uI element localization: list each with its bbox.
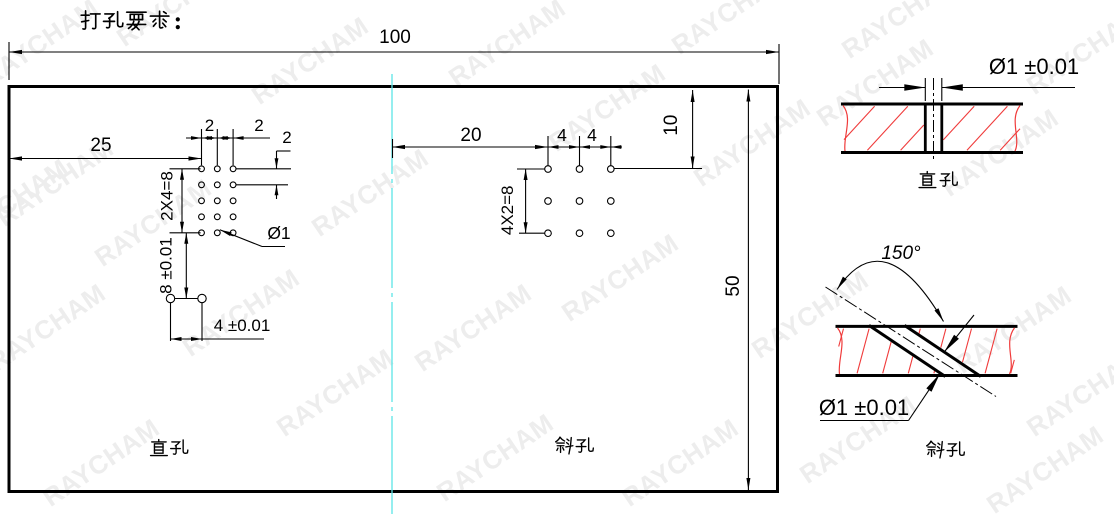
svg-text:2X4=8: 2X4=8 <box>158 171 177 221</box>
svg-text:Ø1 ±0.01: Ø1 ±0.01 <box>989 54 1079 79</box>
svg-text:4 ±0.01: 4 ±0.01 <box>214 316 271 335</box>
svg-text:4X2=8: 4X2=8 <box>498 185 517 235</box>
svg-text:2: 2 <box>205 116 214 135</box>
svg-text:4: 4 <box>587 125 597 145</box>
svg-text:Ø1: Ø1 <box>267 223 290 243</box>
svg-text:50: 50 <box>723 275 744 296</box>
svg-text:2: 2 <box>282 128 291 147</box>
svg-text:10: 10 <box>661 115 682 136</box>
svg-text:Ø1 ±0.01: Ø1 ±0.01 <box>819 395 909 420</box>
svg-text:150°: 150° <box>881 243 921 264</box>
svg-text:20: 20 <box>460 125 481 146</box>
svg-text:2: 2 <box>254 116 263 135</box>
svg-text:100: 100 <box>379 27 411 48</box>
svg-text:4: 4 <box>557 125 567 145</box>
svg-text:8 ±0.01: 8 ±0.01 <box>157 237 176 294</box>
svg-text:25: 25 <box>90 135 111 156</box>
